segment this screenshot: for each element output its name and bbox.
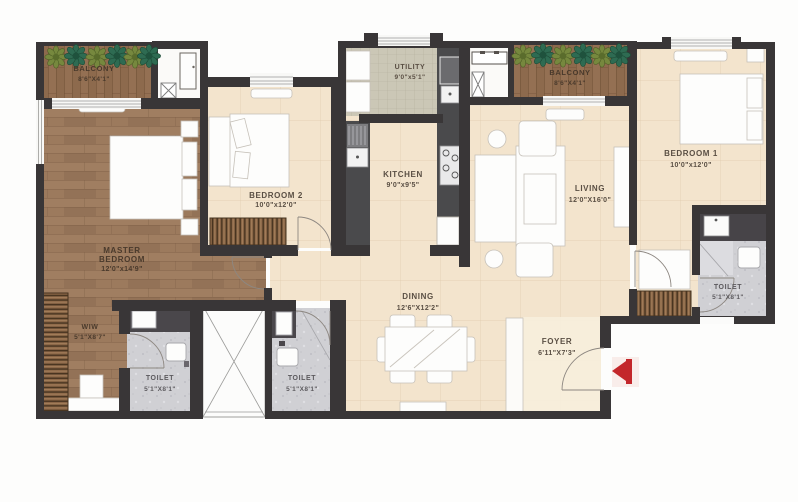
svg-text:TOILET: TOILET bbox=[146, 375, 174, 382]
svg-text:9'0"x5'1": 9'0"x5'1" bbox=[395, 74, 426, 81]
svg-text:5'1"X8'7": 5'1"X8'7" bbox=[74, 334, 106, 341]
svg-text:5'1"X8'1": 5'1"X8'1" bbox=[286, 386, 318, 393]
svg-text:BEDROOM 2: BEDROOM 2 bbox=[249, 191, 303, 200]
svg-text:BEDROOM: BEDROOM bbox=[99, 255, 145, 264]
svg-text:BALCONY: BALCONY bbox=[73, 64, 114, 73]
svg-text:DINING: DINING bbox=[402, 292, 434, 301]
svg-text:KITCHEN: KITCHEN bbox=[383, 170, 423, 179]
svg-text:TOILET: TOILET bbox=[714, 284, 742, 291]
svg-text:10'0"x12'0": 10'0"x12'0" bbox=[255, 202, 297, 209]
svg-text:WIW: WIW bbox=[82, 324, 99, 331]
svg-text:LIVING: LIVING bbox=[575, 184, 605, 193]
svg-text:MASTER: MASTER bbox=[103, 246, 140, 255]
svg-text:BALCONY: BALCONY bbox=[549, 68, 590, 77]
svg-text:8'6"X4'1": 8'6"X4'1" bbox=[78, 76, 110, 83]
svg-text:6'11"X7'3": 6'11"X7'3" bbox=[538, 350, 576, 357]
svg-text:BEDROOM 1: BEDROOM 1 bbox=[664, 149, 718, 158]
svg-text:TOILET: TOILET bbox=[288, 375, 316, 382]
svg-text:5'1"X8'1": 5'1"X8'1" bbox=[712, 294, 744, 301]
svg-text:12'6"X12'2": 12'6"X12'2" bbox=[397, 305, 439, 312]
svg-text:FOYER: FOYER bbox=[542, 337, 573, 346]
svg-text:12'0"X16'0": 12'0"X16'0" bbox=[569, 197, 611, 204]
svg-text:5'1"X8'1": 5'1"X8'1" bbox=[144, 386, 176, 393]
svg-text:10'0"x12'0": 10'0"x12'0" bbox=[670, 162, 712, 169]
svg-text:UTILITY: UTILITY bbox=[395, 64, 426, 71]
svg-text:12'0"x14'9": 12'0"x14'9" bbox=[101, 266, 143, 273]
svg-text:9'0"x9'5": 9'0"x9'5" bbox=[386, 182, 419, 189]
svg-text:8'6"X4'1": 8'6"X4'1" bbox=[554, 80, 586, 87]
